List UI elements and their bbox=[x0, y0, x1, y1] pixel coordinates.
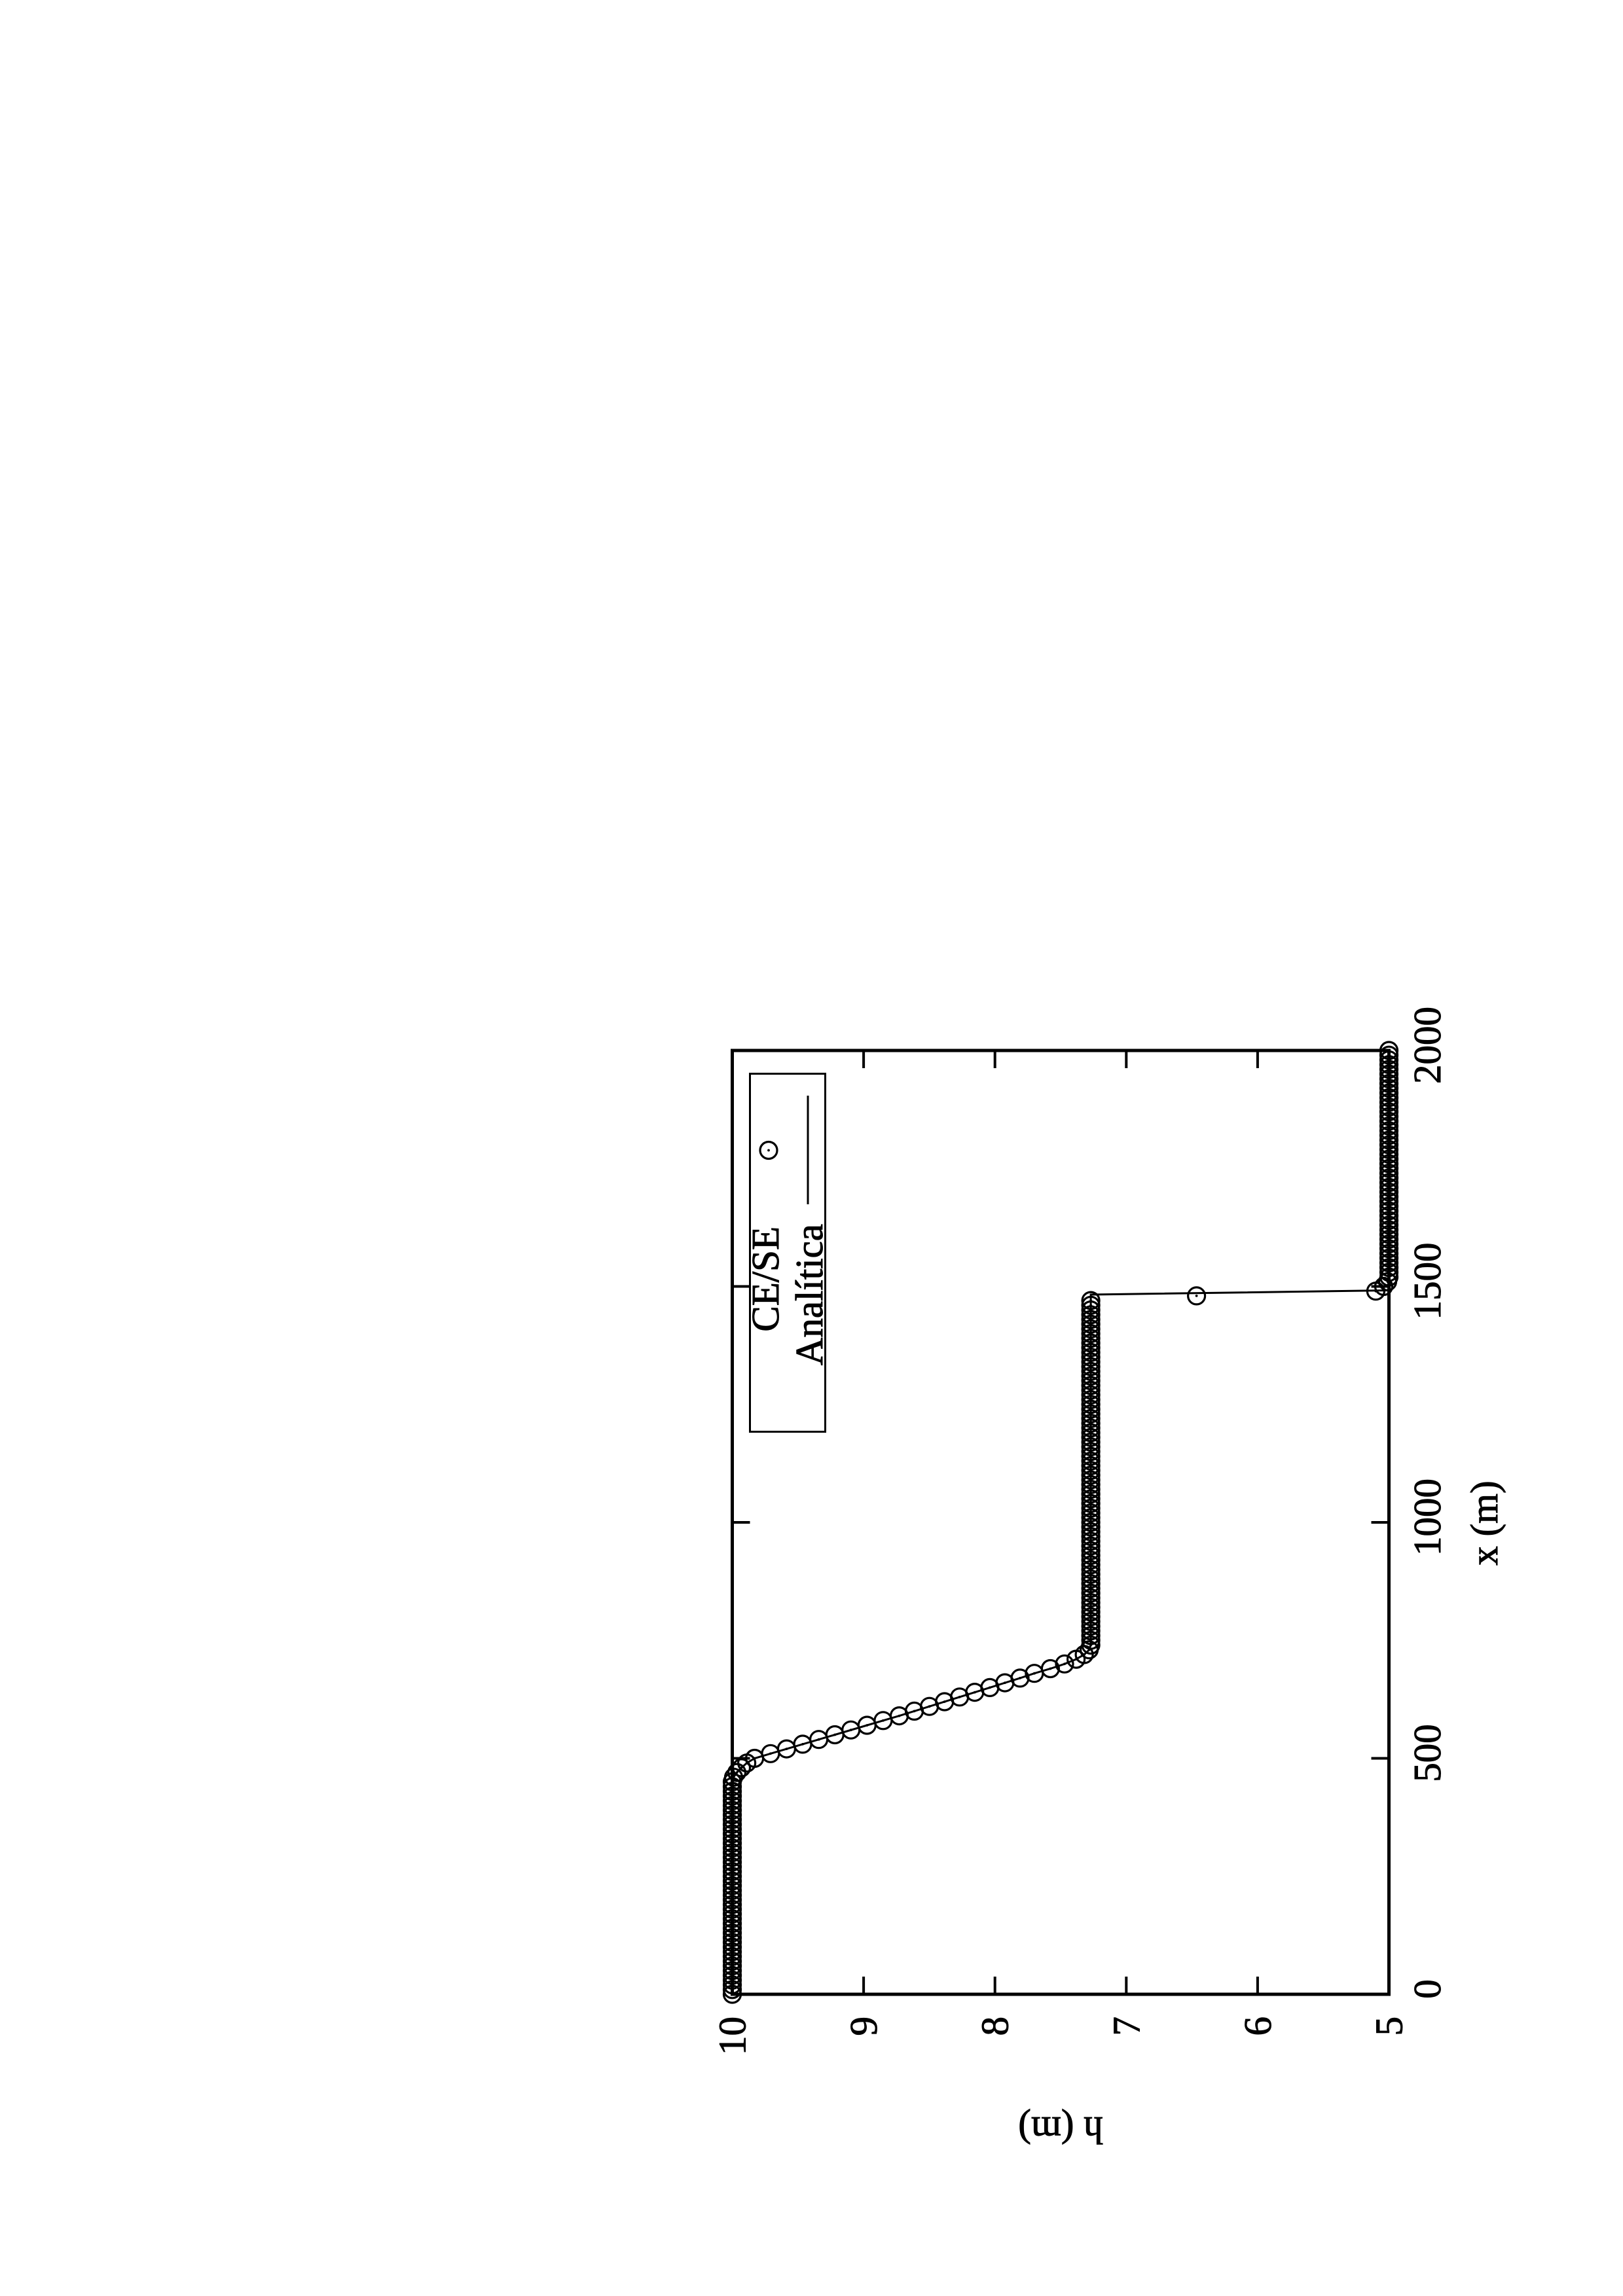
svg-text:8: 8 bbox=[974, 2017, 1017, 2036]
svg-text:1500: 1500 bbox=[1406, 1243, 1449, 1320]
svg-text:7: 7 bbox=[1104, 2017, 1148, 2036]
svg-text:CE/SE: CE/SE bbox=[744, 1227, 787, 1332]
svg-text:2000: 2000 bbox=[1406, 1007, 1449, 1084]
svg-text:1000: 1000 bbox=[1406, 1479, 1449, 1556]
svg-text:x (m): x (m) bbox=[1463, 1480, 1506, 1565]
svg-text:Analítica: Analítica bbox=[788, 1224, 831, 1365]
svg-text:500: 500 bbox=[1406, 1724, 1449, 1782]
svg-text:9: 9 bbox=[842, 2017, 885, 2036]
svg-text:5: 5 bbox=[1368, 2017, 1411, 2036]
svg-text:0: 0 bbox=[1406, 1979, 1449, 1999]
svg-text:6: 6 bbox=[1236, 2017, 1279, 2036]
svg-text:h (m): h (m) bbox=[1018, 2109, 1103, 2152]
svg-text:10: 10 bbox=[711, 2017, 754, 2055]
